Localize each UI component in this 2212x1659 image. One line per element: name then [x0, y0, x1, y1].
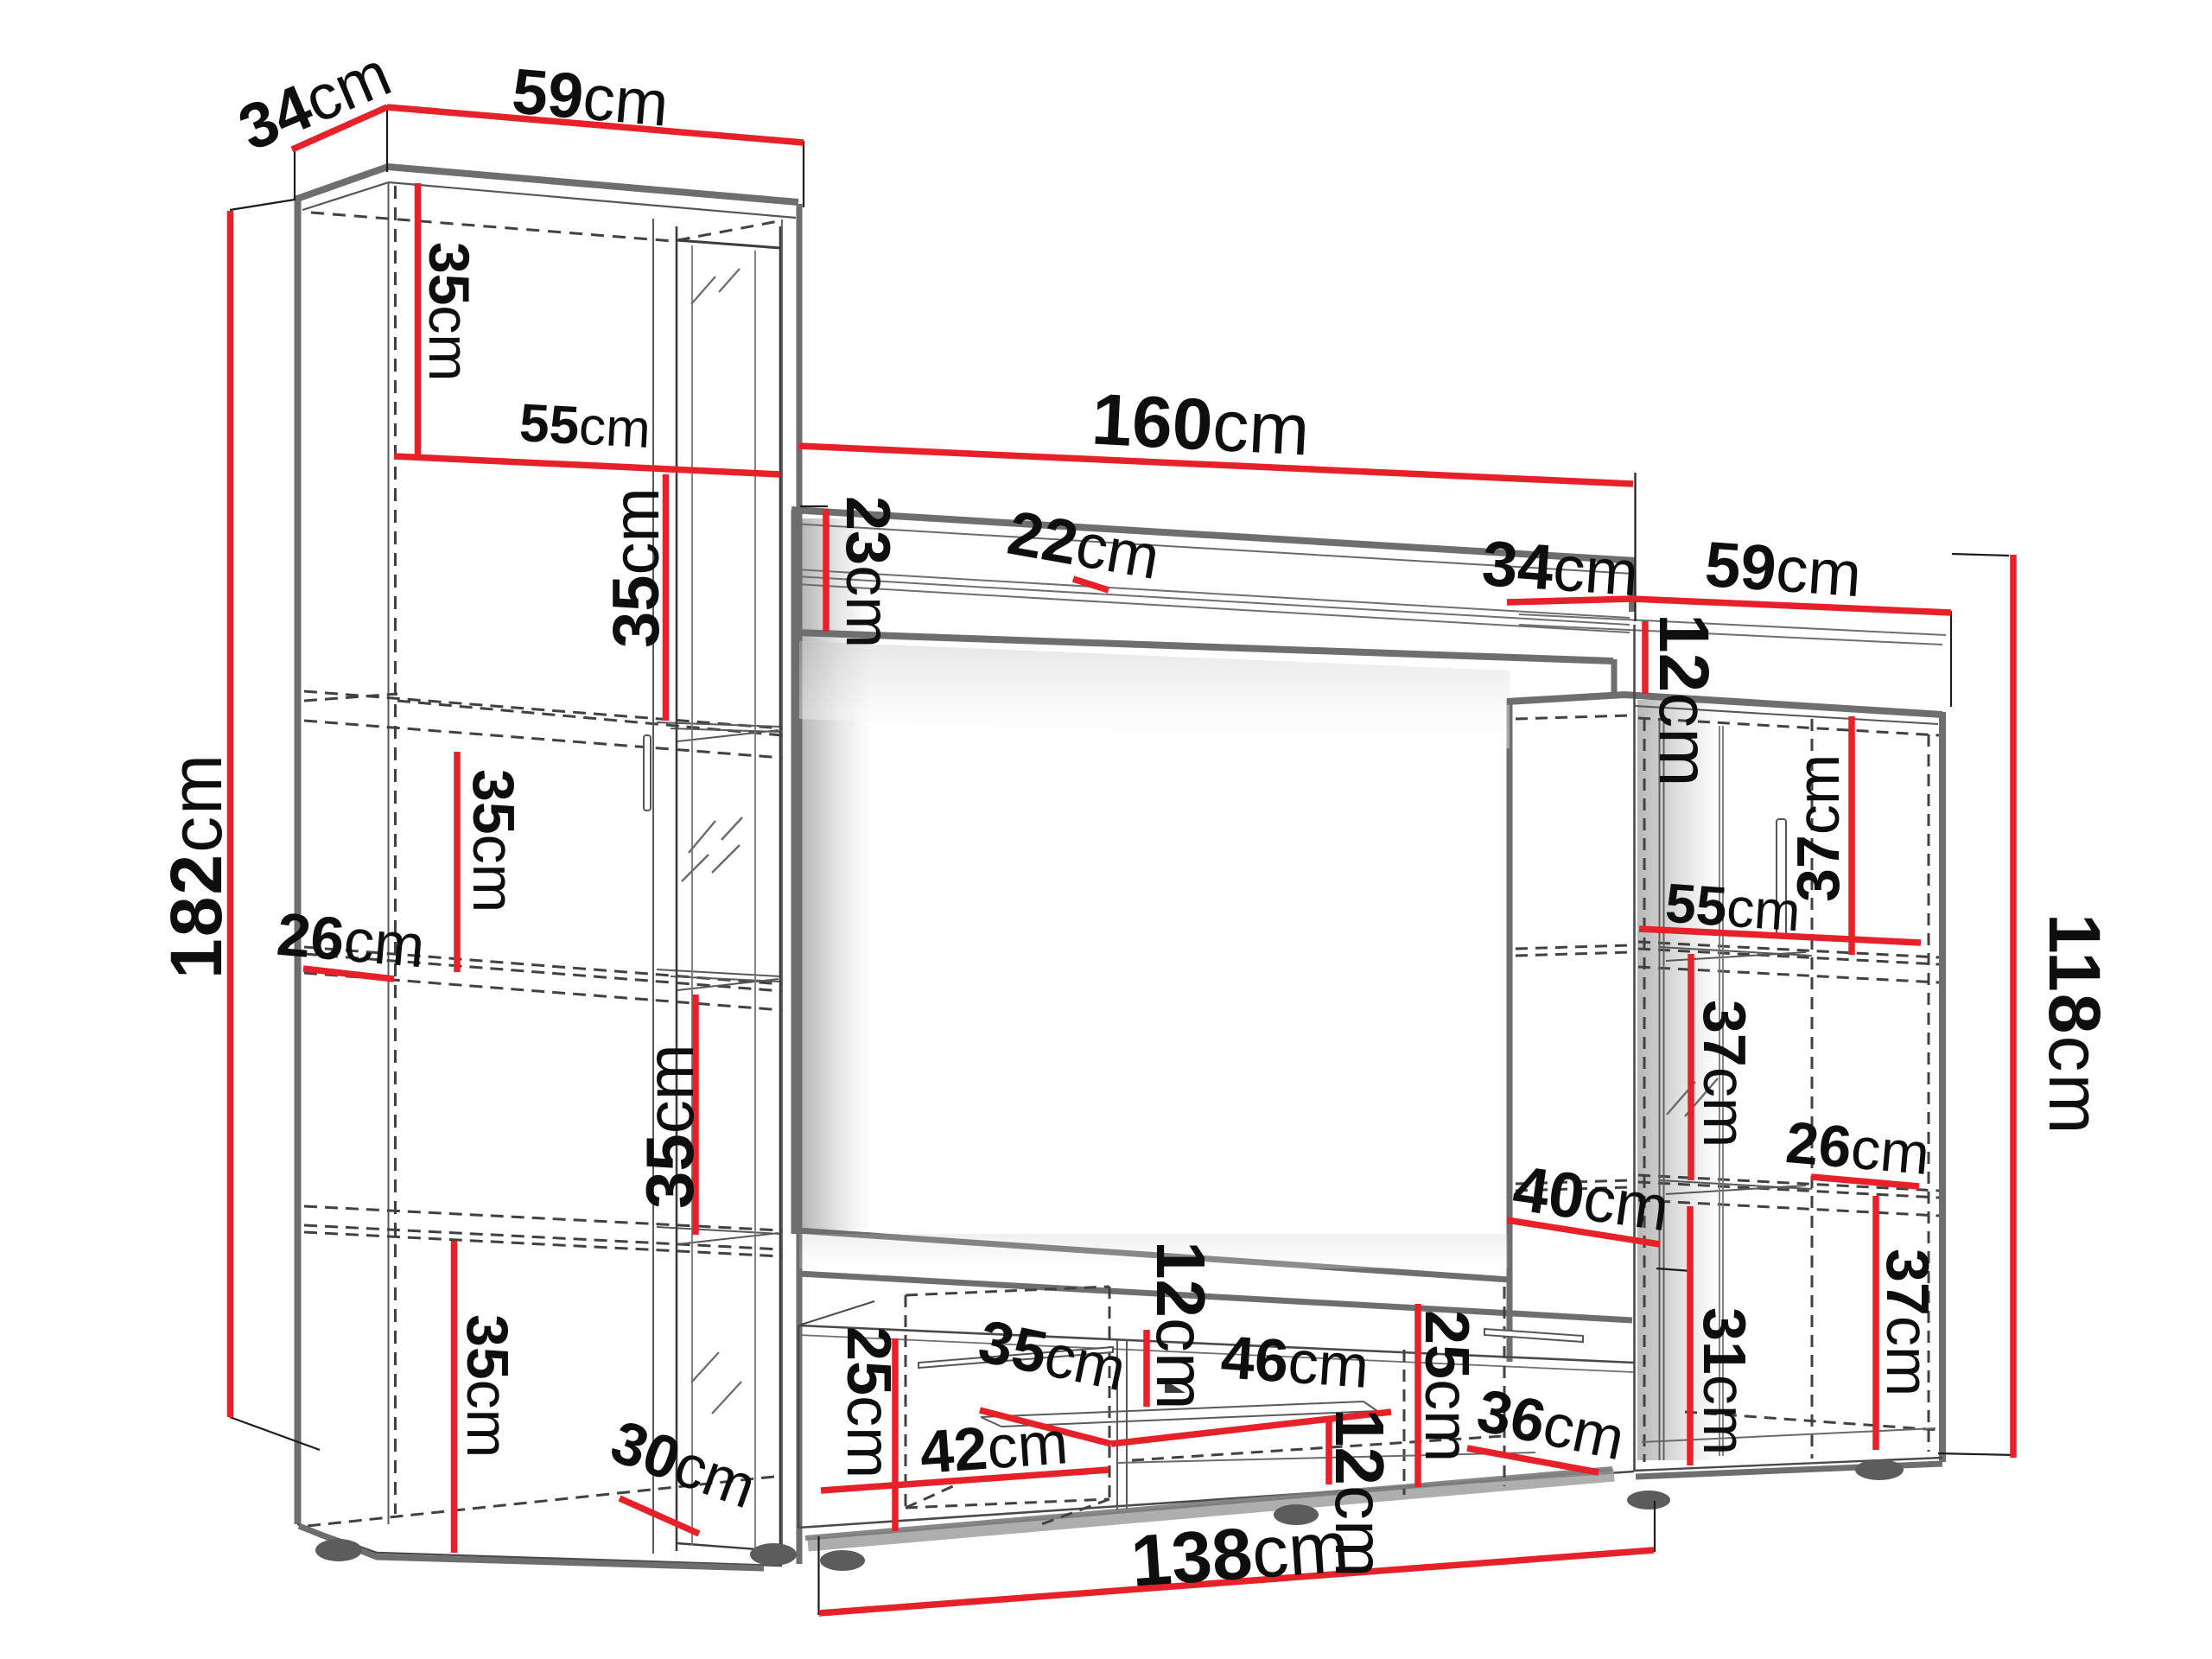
svg-text:25cm: 25cm — [834, 1326, 903, 1478]
svg-text:55cm: 55cm — [1663, 872, 1802, 944]
svg-text:35cm: 35cm — [417, 242, 481, 381]
svg-text:12cm: 12cm — [1644, 613, 1723, 787]
svg-text:35cm: 35cm — [461, 769, 526, 912]
svg-text:37cm: 37cm — [1874, 1249, 1942, 1396]
svg-text:138cm: 138cm — [1128, 1505, 1351, 1601]
svg-text:25cm: 25cm — [1412, 1310, 1481, 1462]
svg-text:55cm: 55cm — [518, 393, 652, 460]
svg-text:35cm: 35cm — [454, 1314, 520, 1458]
svg-text:26cm: 26cm — [1783, 1109, 1932, 1187]
svg-text:182cm: 182cm — [156, 753, 237, 979]
svg-text:26cm: 26cm — [274, 900, 427, 981]
svg-text:34cm: 34cm — [1480, 527, 1641, 609]
svg-text:46cm: 46cm — [1219, 1323, 1371, 1401]
svg-text:12cm: 12cm — [1142, 1241, 1219, 1410]
svg-text:35cm: 35cm — [600, 487, 673, 648]
svg-text:23cm: 23cm — [833, 496, 902, 648]
svg-text:37cm: 37cm — [1691, 1000, 1758, 1147]
svg-text:160cm: 160cm — [1090, 378, 1312, 471]
svg-text:59cm: 59cm — [1703, 528, 1864, 610]
svg-text:118cm: 118cm — [2034, 913, 2115, 1136]
svg-text:31cm: 31cm — [1691, 1307, 1758, 1455]
svg-text:35cm: 35cm — [632, 1044, 708, 1209]
svg-text:59cm: 59cm — [509, 54, 671, 139]
svg-text:42cm: 42cm — [918, 1408, 1070, 1486]
